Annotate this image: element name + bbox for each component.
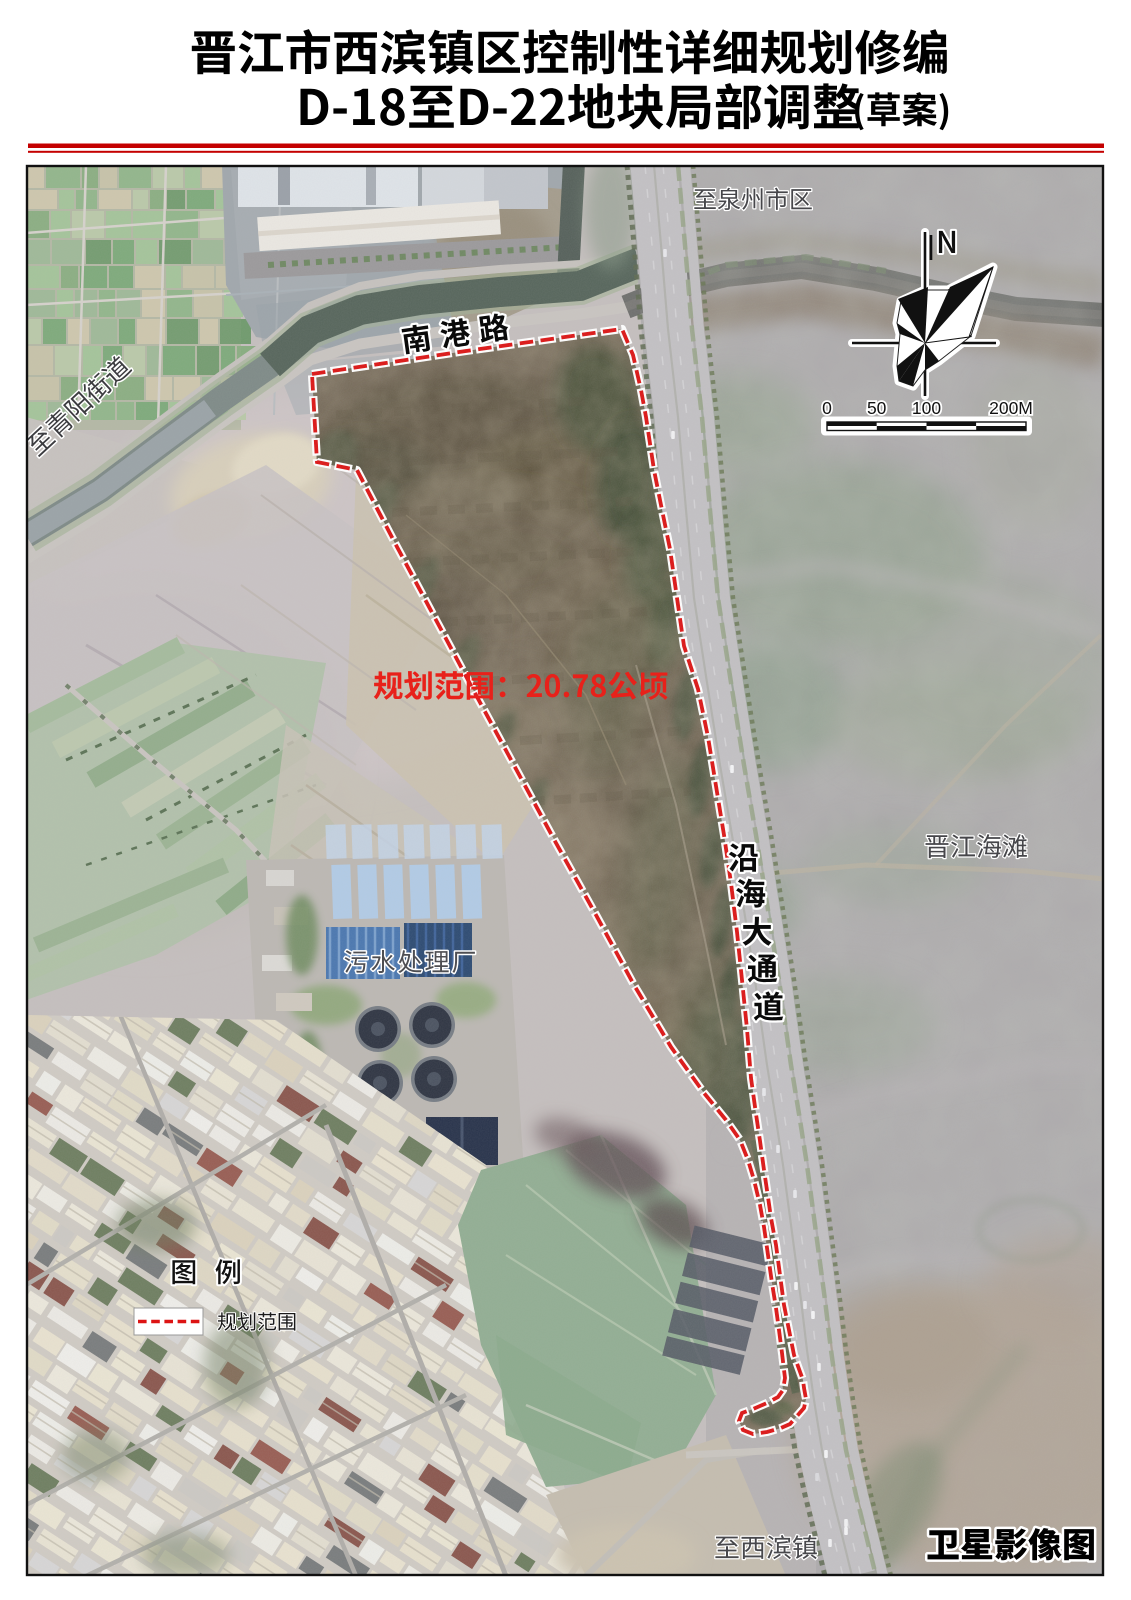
svg-text:50: 50 [867, 398, 887, 418]
svg-text:0: 0 [822, 398, 832, 418]
svg-text:100: 100 [912, 398, 941, 418]
svg-text:200M: 200M [989, 398, 1033, 418]
